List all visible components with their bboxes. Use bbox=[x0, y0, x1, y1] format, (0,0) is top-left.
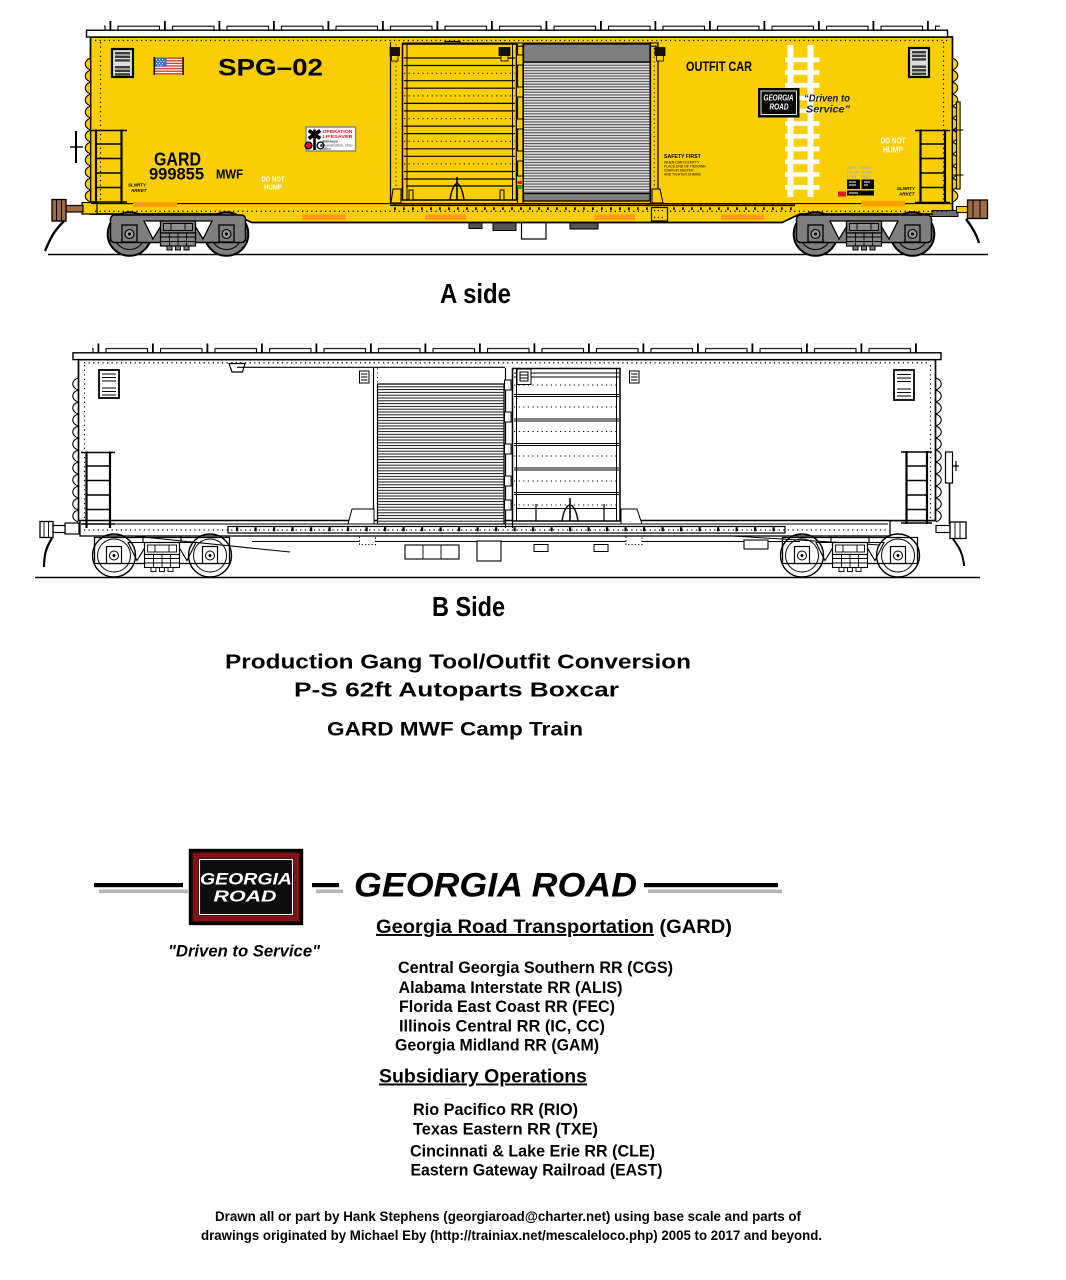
svg-text:Central Georgia Southern RR (: Central Georgia Southern RR (CGS) bbox=[398, 958, 673, 977]
svg-text:HUMP: HUMP bbox=[264, 185, 282, 192]
svg-text:Subsidiary Operations: Subsidiary Operations bbox=[379, 1066, 587, 1088]
svg-text:ARKET: ARKET bbox=[898, 192, 916, 197]
svg-text:AND TIGHTEN CHAINS: AND TIGHTEN CHAINS bbox=[664, 173, 701, 177]
svg-text:ROAD: ROAD bbox=[770, 103, 789, 112]
svg-text:CAPY 110000: CAPY 110000 bbox=[847, 166, 871, 170]
svg-text:office: office bbox=[323, 147, 332, 151]
svg-text:Alabama Interstate RR (ALIS): Alabama Interstate RR (ALIS) bbox=[399, 978, 623, 997]
svg-text:LT WT 77600: LT WT 77600 bbox=[847, 175, 870, 179]
svg-text:MWF: MWF bbox=[216, 168, 243, 182]
svg-text:Service”: Service” bbox=[806, 105, 850, 116]
svg-text:ROAD: ROAD bbox=[214, 889, 278, 906]
svg-text:SLNRTY: SLNRTY bbox=[897, 186, 916, 191]
svg-text:Florida East Coast RR (FEC): Florida East Coast RR (FEC) bbox=[399, 997, 615, 1016]
svg-text:Georgia Road Transportation (G: Georgia Road Transportation (GARD) bbox=[376, 916, 732, 938]
svg-text:GEORGIA: GEORGIA bbox=[764, 94, 794, 103]
svg-text:OUTFIT CAR: OUTFIT CAR bbox=[686, 58, 752, 74]
svg-text:Cincinnati & Lake Erie RR (CL: Cincinnati & Lake Erie RR (CLE) bbox=[410, 1142, 655, 1161]
svg-text:LD LMT 157400: LD LMT 157400 bbox=[847, 171, 872, 175]
svg-text:HUMP: HUMP bbox=[883, 146, 904, 155]
svg-text:"Driven to Service": "Driven to Service" bbox=[168, 943, 320, 961]
svg-text:Texas Eastern RR (TXE): Texas Eastern RR (TXE) bbox=[413, 1120, 598, 1139]
svg-text:ARKET: ARKET bbox=[130, 188, 148, 193]
svg-text:A side: A side bbox=[440, 278, 511, 309]
svg-text:GARD MWF Camp Train: GARD MWF Camp Train bbox=[327, 719, 583, 741]
svg-text:Production Gang Tool/Outfit Co: Production Gang Tool/Outfit Conversion bbox=[225, 651, 691, 674]
svg-text:DO NOT: DO NOT bbox=[262, 177, 286, 184]
svg-text:Drawn all or part by Hank Step: Drawn all or part by Hank Stephens (geor… bbox=[215, 1209, 801, 1224]
svg-text:999855: 999855 bbox=[149, 165, 204, 184]
svg-text:SLNRTY: SLNRTY bbox=[128, 183, 147, 188]
svg-text:“Driven to: “Driven to bbox=[804, 94, 850, 105]
svg-text:GEORGIA: GEORGIA bbox=[200, 871, 292, 889]
svg-text:Rio Pacifico RR (RIO): Rio Pacifico RR (RIO) bbox=[413, 1100, 578, 1119]
svg-text:Eastern Gateway Railroad (EAST: Eastern Gateway Railroad (EAST) bbox=[411, 1161, 663, 1180]
svg-text:Georgia Midland RR (GAM): Georgia Midland RR (GAM) bbox=[395, 1036, 599, 1055]
svg-text:LIFESAVER: LIFESAVER bbox=[323, 134, 354, 139]
svg-text:SPG–02: SPG–02 bbox=[218, 55, 323, 82]
svg-text:P-S 62ft Autoparts Boxcar: P-S 62ft Autoparts Boxcar bbox=[294, 679, 619, 702]
svg-text:GEORGIA ROAD: GEORGIA ROAD bbox=[354, 867, 637, 905]
svg-text:drawings originated by Michael: drawings originated by Michael Eby (http… bbox=[201, 1228, 822, 1243]
svg-text:DO NOT: DO NOT bbox=[881, 137, 906, 146]
svg-text:B Side: B Side bbox=[432, 591, 505, 622]
svg-text:Illinois Central RR (IC, CC): Illinois Central RR (IC, CC) bbox=[399, 1016, 605, 1035]
svg-text:SAFETY FIRST: SAFETY FIRST bbox=[664, 154, 702, 160]
